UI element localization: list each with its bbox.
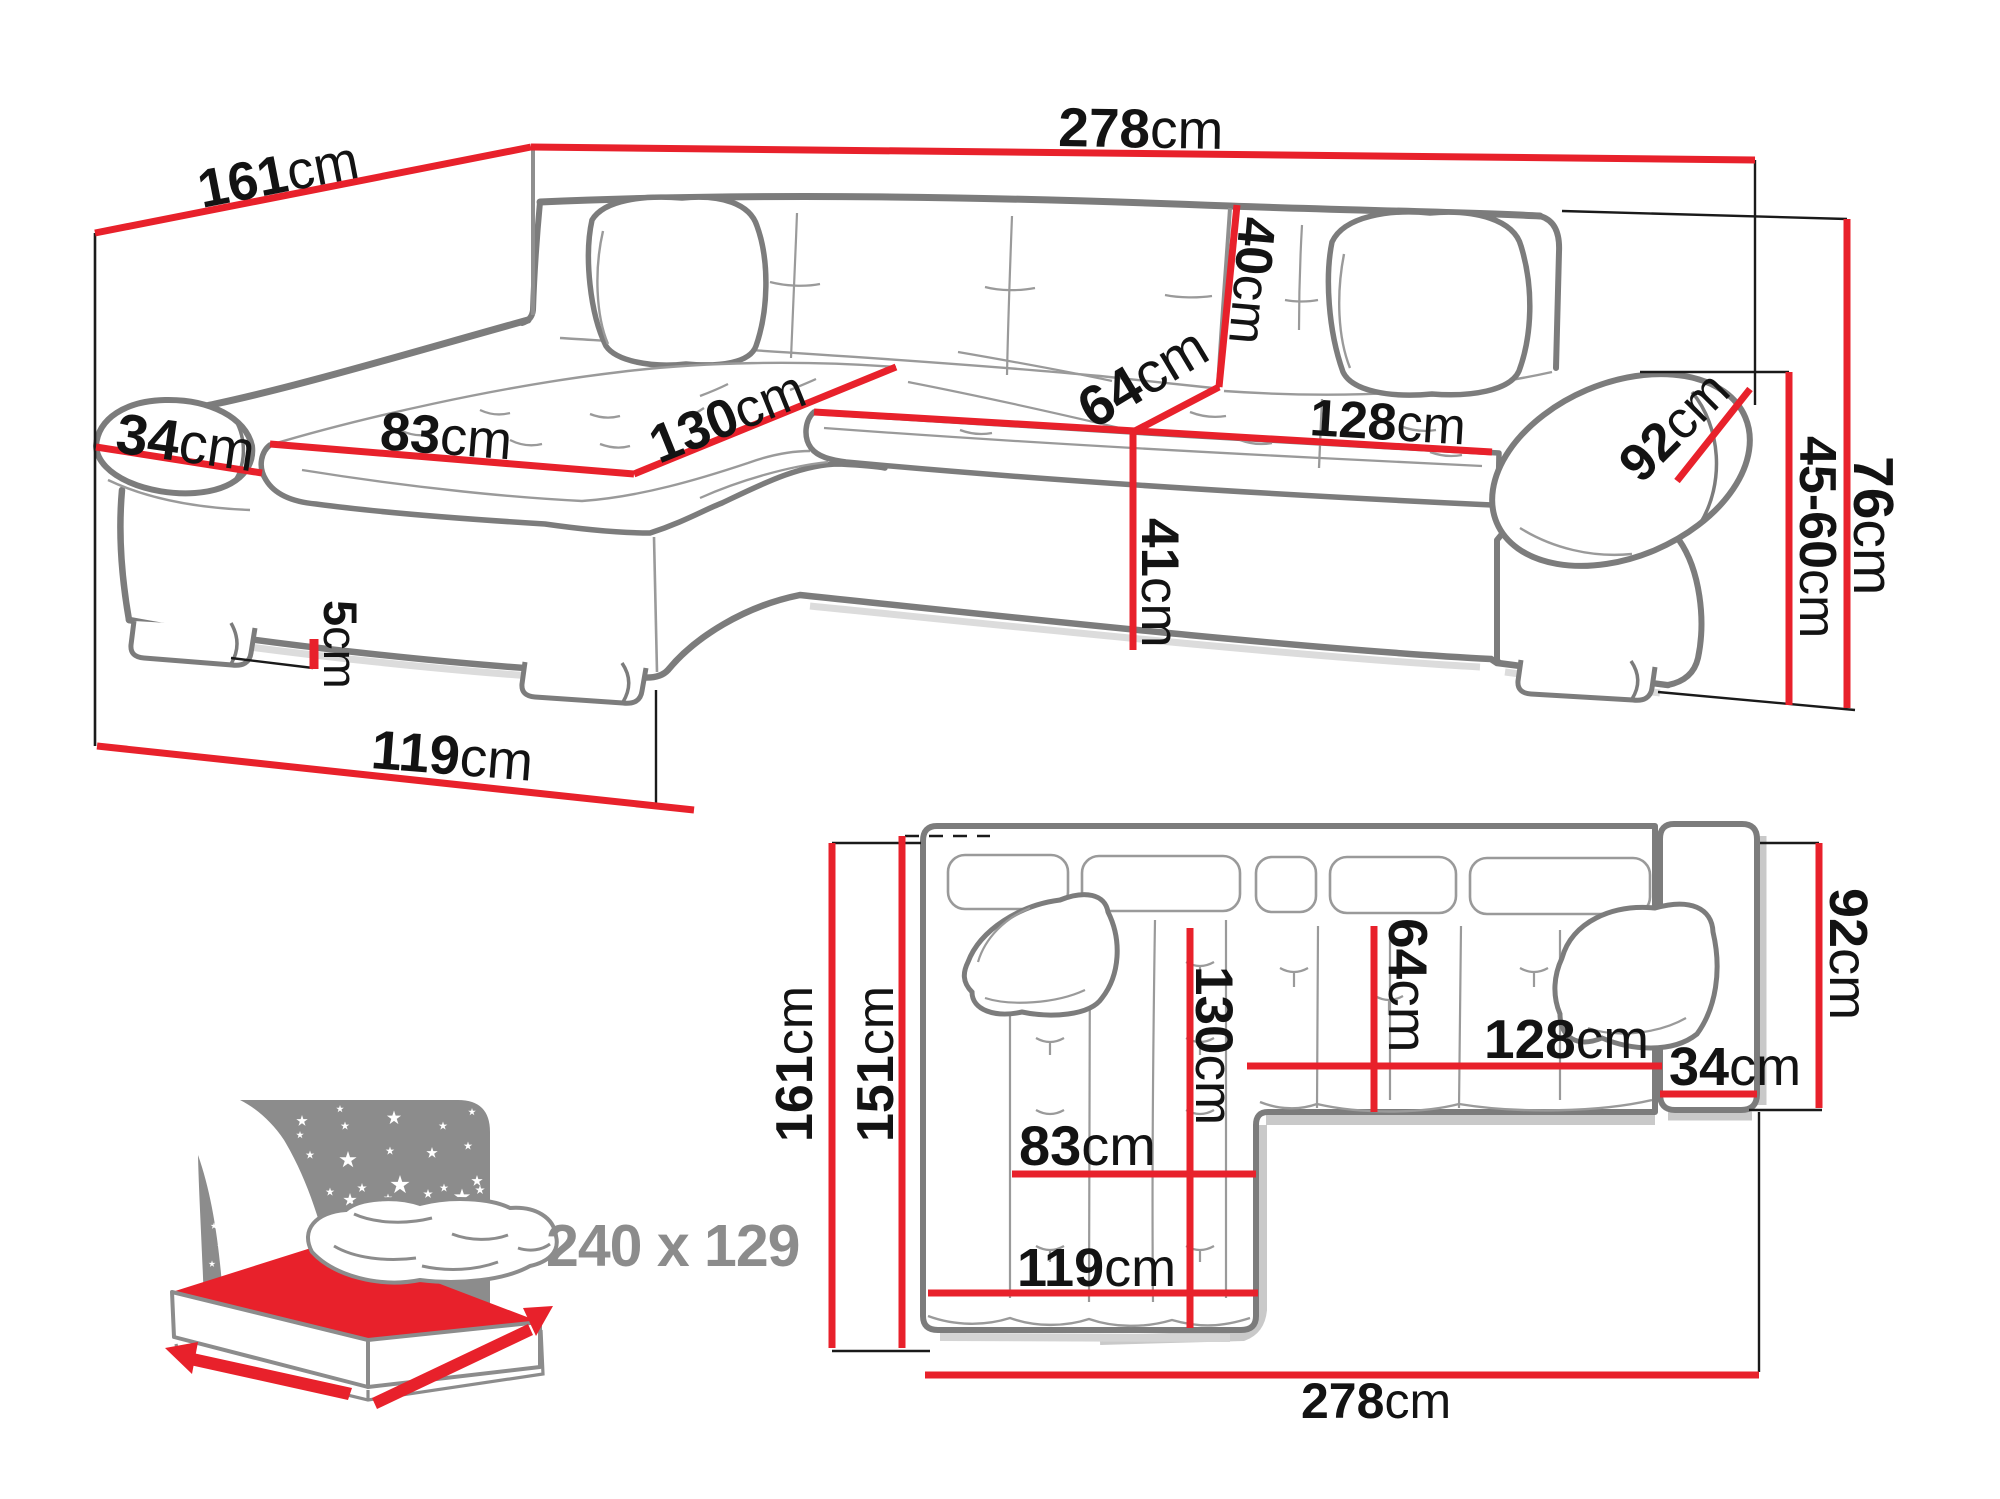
svg-text:64cm: 64cm: [1377, 918, 1439, 1053]
svg-text:83cm: 83cm: [378, 401, 514, 471]
svg-text:40cm: 40cm: [1217, 215, 1286, 347]
svg-text:5cm: 5cm: [314, 600, 367, 689]
svg-text:45-60cm: 45-60cm: [1788, 436, 1846, 638]
svg-text:161cm: 161cm: [766, 986, 824, 1142]
svg-text:130cm: 130cm: [1184, 966, 1243, 1125]
svg-text:76cm: 76cm: [1841, 456, 1905, 595]
svg-text:161cm: 161cm: [193, 130, 364, 220]
svg-text:92cm: 92cm: [1818, 888, 1878, 1020]
svg-text:41cm: 41cm: [1130, 518, 1189, 648]
svg-text:128cm: 128cm: [1484, 1008, 1649, 1070]
svg-text:34cm: 34cm: [1669, 1037, 1801, 1097]
svg-text:83cm: 83cm: [1019, 1114, 1156, 1177]
svg-text:278cm: 278cm: [1301, 1373, 1451, 1429]
svg-text:128cm: 128cm: [1308, 389, 1467, 456]
svg-text:119cm: 119cm: [369, 718, 535, 793]
svg-text:278cm: 278cm: [1058, 96, 1224, 161]
svg-text:240 x 129: 240 x 129: [546, 1213, 799, 1279]
svg-text:64cm: 64cm: [1067, 314, 1219, 441]
svg-text:151cm: 151cm: [847, 986, 905, 1142]
svg-text:119cm: 119cm: [1017, 1238, 1176, 1298]
